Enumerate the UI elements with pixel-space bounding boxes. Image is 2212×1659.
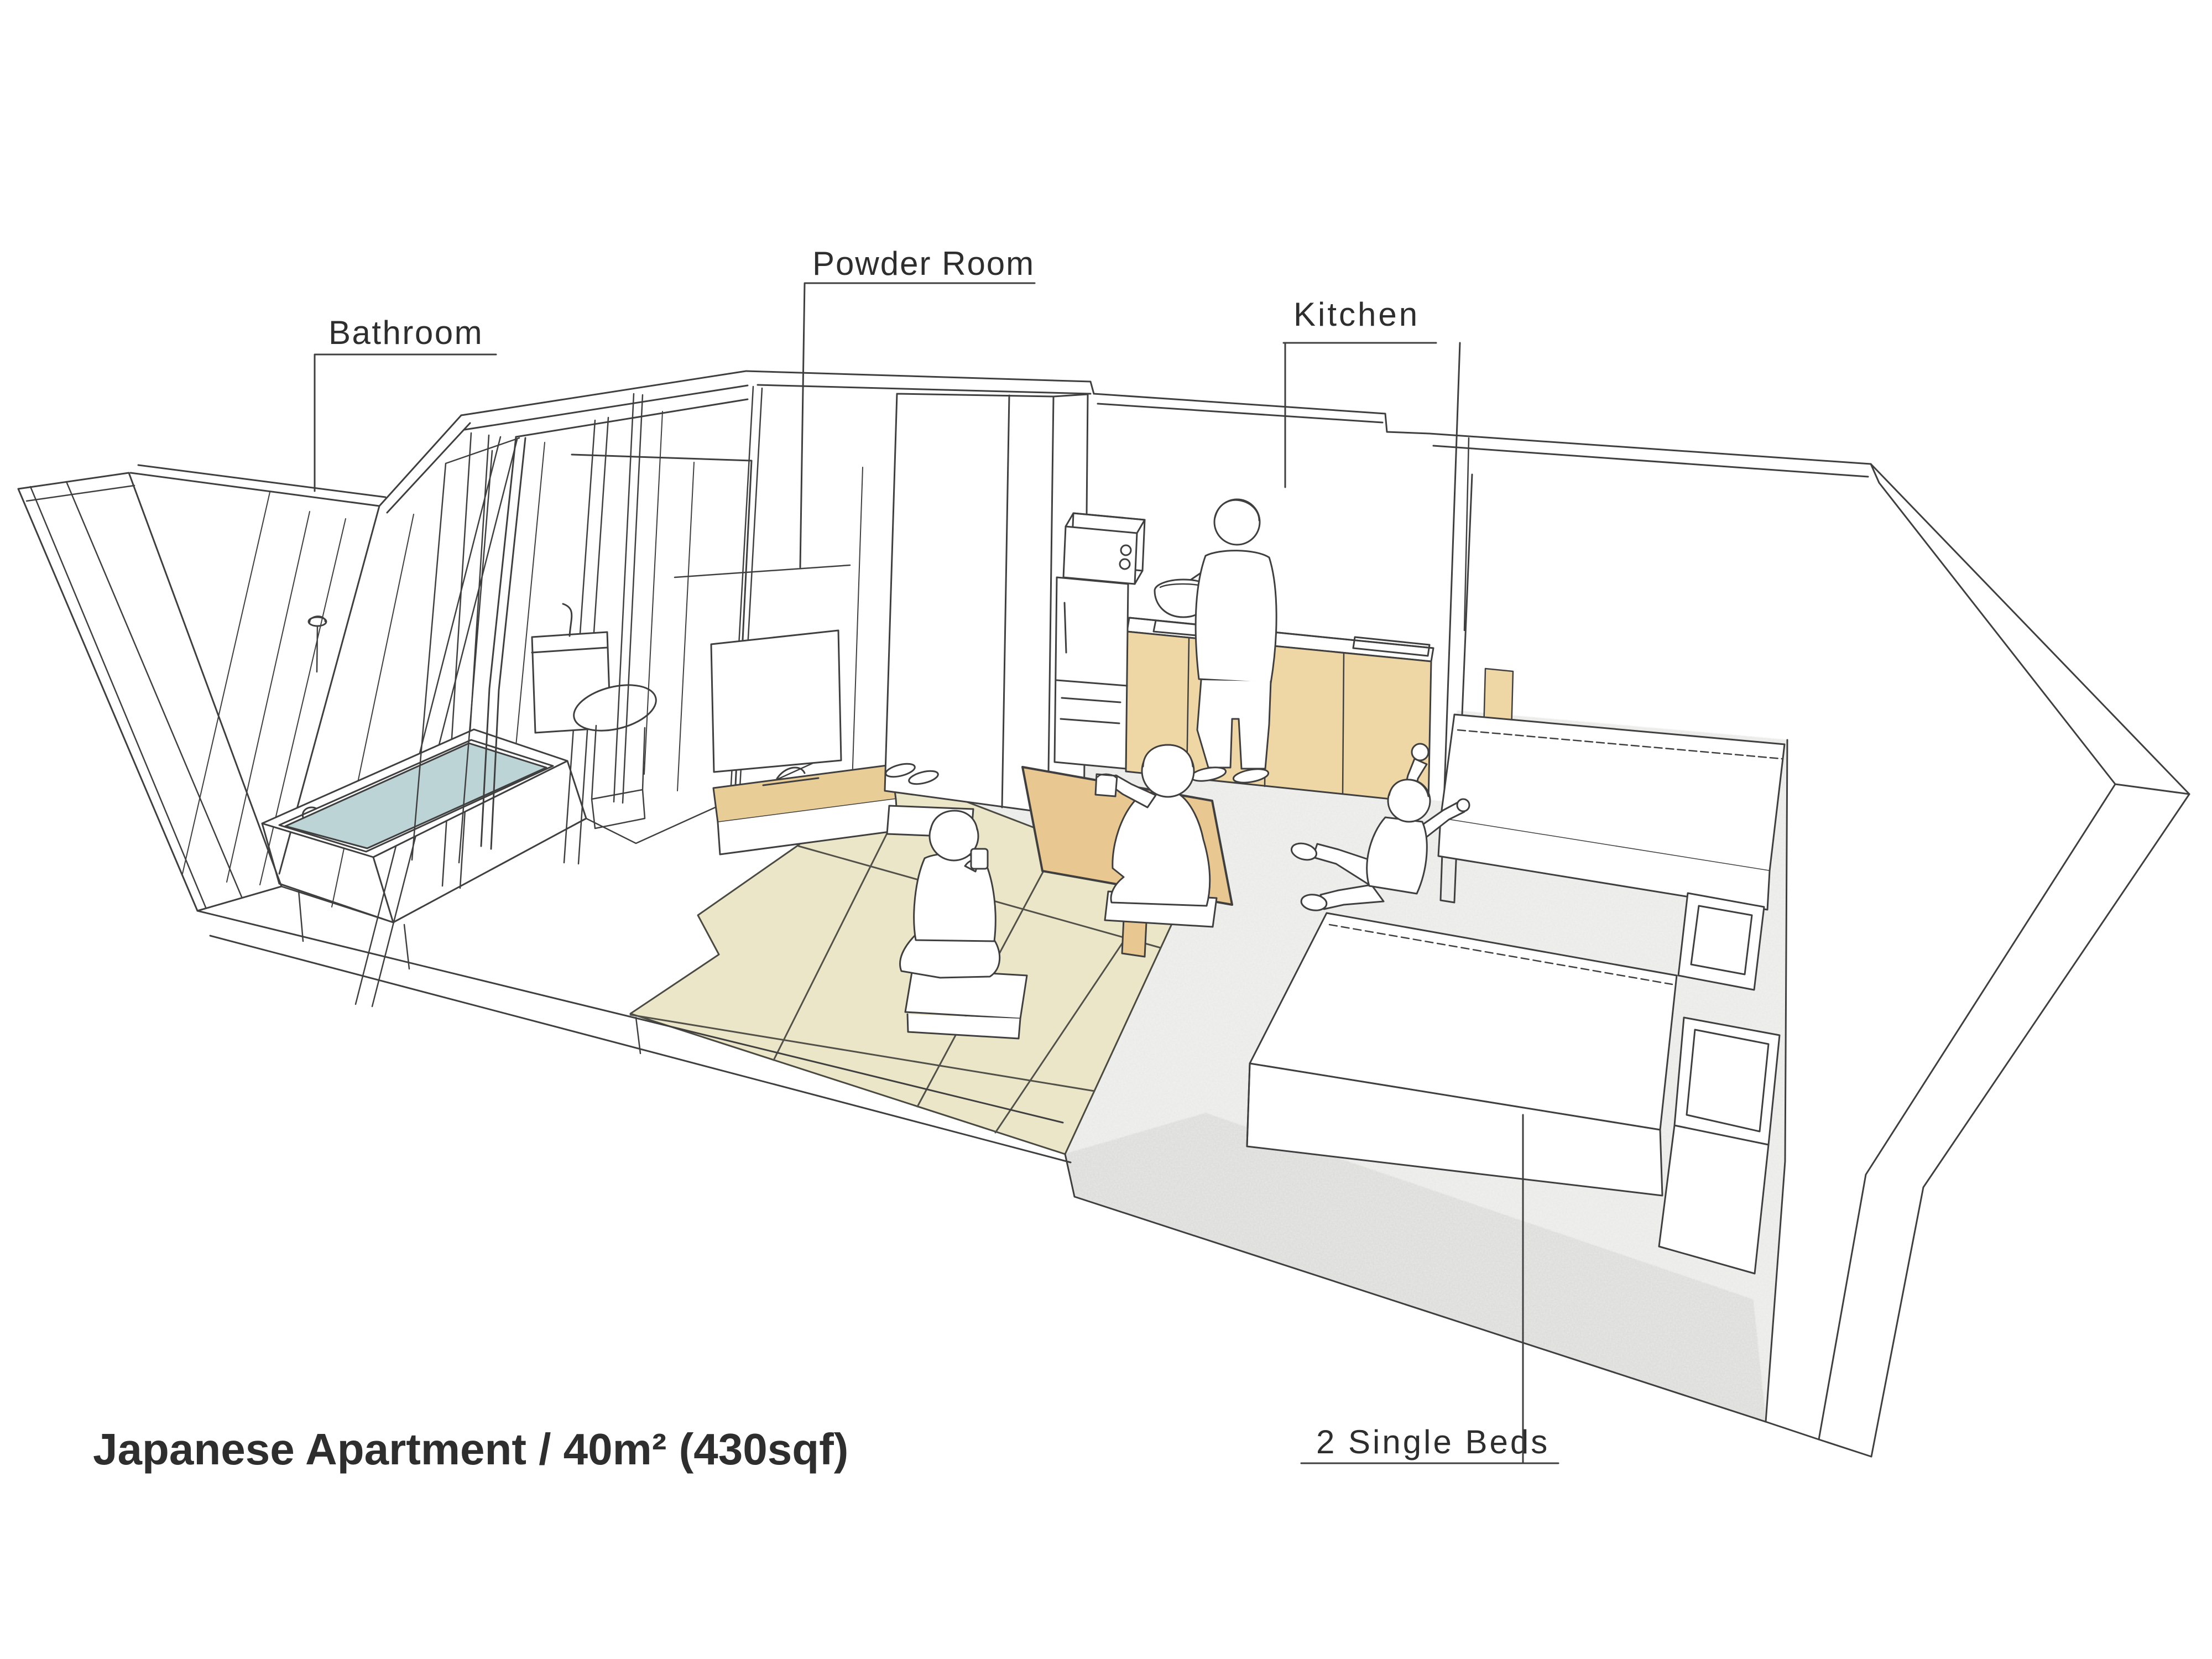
svg-text:Powder Room: Powder Room — [812, 245, 1035, 282]
svg-text:Bathroom: Bathroom — [328, 314, 483, 351]
svg-text:Japanese Apartment / 40m² (430: Japanese Apartment / 40m² (430sqf) — [93, 1425, 848, 1474]
svg-text:Kitchen: Kitchen — [1293, 296, 1420, 333]
svg-text:2 Single Beds: 2 Single Beds — [1316, 1423, 1550, 1460]
